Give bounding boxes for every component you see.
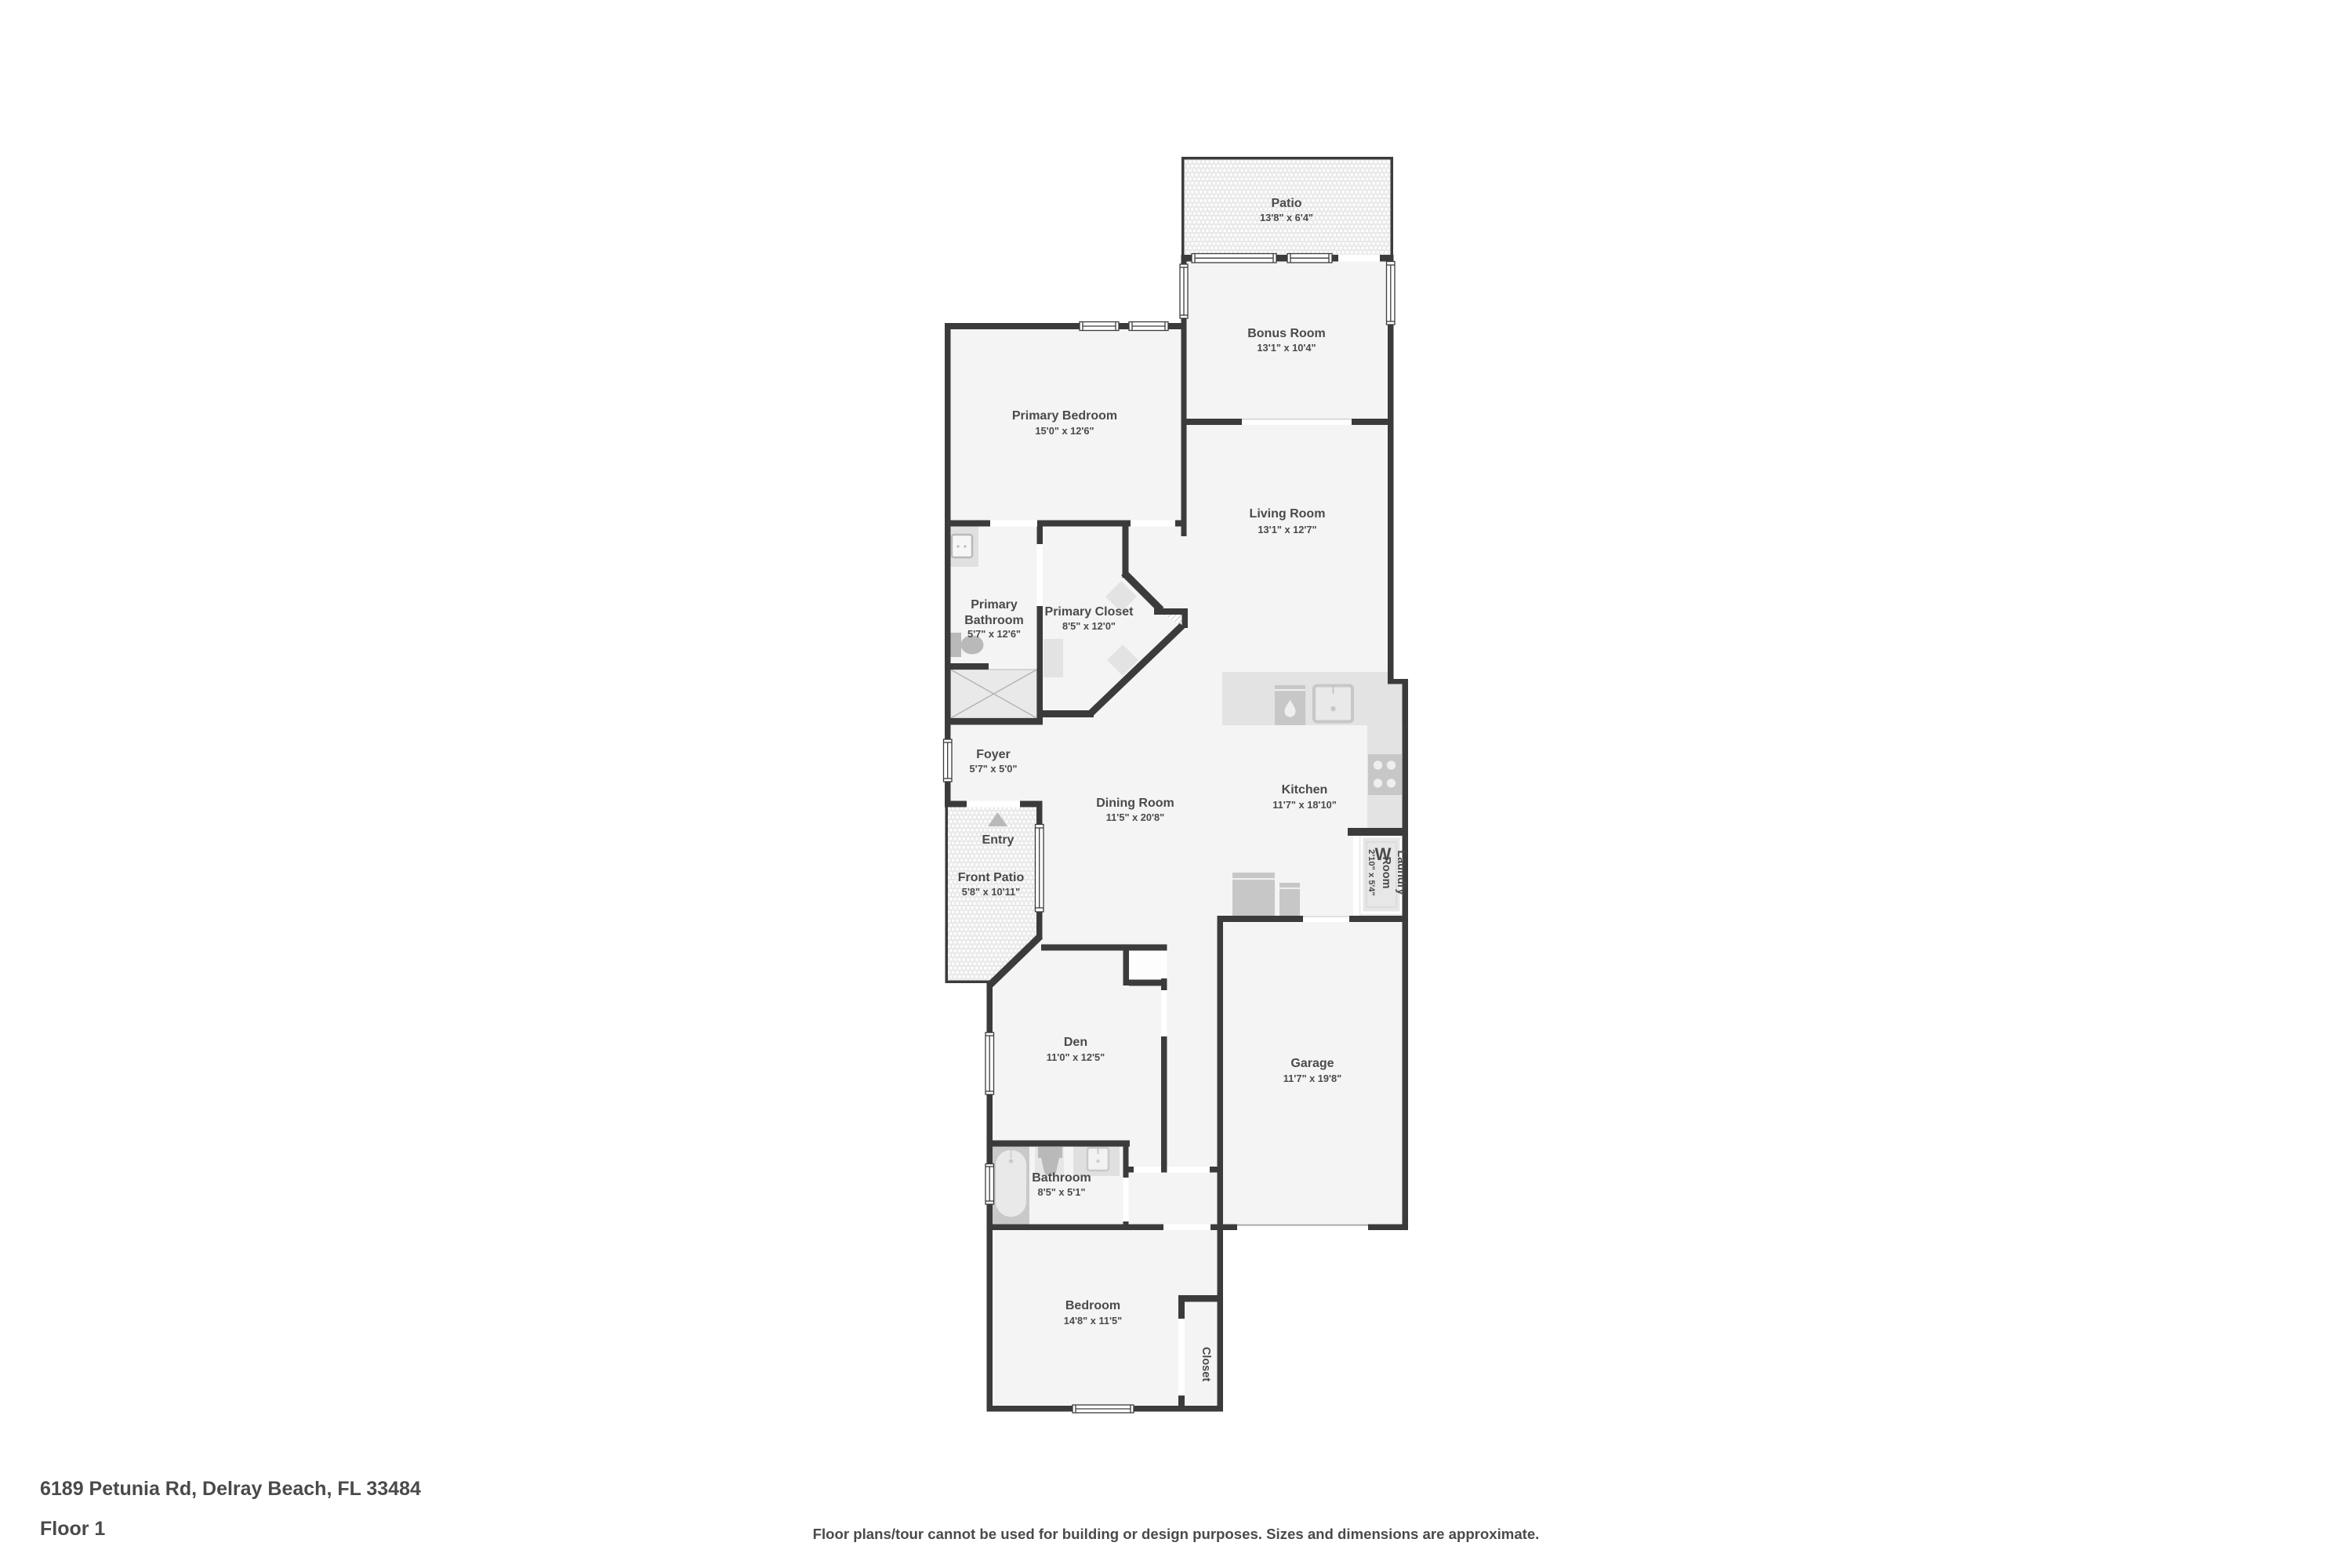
svg-text:11'7" x 18'10": 11'7" x 18'10" [1272,799,1337,811]
svg-text:13'1" x 10'4": 13'1" x 10'4" [1257,342,1316,354]
svg-text:Dining Room: Dining Room [1096,797,1174,810]
svg-text:Primary Bedroom: Primary Bedroom [1012,409,1117,423]
svg-text:Living Room: Living Room [1250,507,1326,521]
svg-text:Patio: Patio [1271,197,1301,210]
svg-text:Floor 1: Floor 1 [40,1518,105,1540]
svg-text:2'10" x 5'4": 2'10" x 5'4" [1367,849,1376,895]
svg-text:14'8" x 11'5": 14'8" x 11'5" [1064,1315,1122,1327]
svg-text:Room: Room [1380,856,1392,888]
svg-text:Bathroom: Bathroom [1032,1171,1091,1185]
svg-text:Primary Closet: Primary Closet [1045,605,1134,619]
svg-text:Bonus Room: Bonus Room [1247,327,1326,340]
svg-text:13'1" x 12'7": 13'1" x 12'7" [1258,524,1316,535]
svg-text:Bathroom: Bathroom [964,614,1024,627]
svg-text:Laundry: Laundry [1395,850,1407,895]
svg-text:Foyer: Foyer [976,748,1011,761]
svg-text:15'0" x 12'6": 15'0" x 12'6" [1035,425,1094,437]
svg-text:Primary: Primary [971,598,1018,612]
svg-text:11'5" x 20'8": 11'5" x 20'8" [1106,811,1164,823]
svg-text:Floor plans/tour cannot be use: Floor plans/tour cannot be used for buil… [813,1526,1540,1542]
svg-text:Den: Den [1064,1036,1087,1049]
svg-text:Closet: Closet [1200,1347,1212,1381]
svg-text:13'8" x 6'4": 13'8" x 6'4" [1260,212,1313,223]
svg-text:Kitchen: Kitchen [1282,783,1328,797]
svg-text:5'7" x 12'6": 5'7" x 12'6" [967,628,1021,640]
svg-text:11'0" x 12'5": 11'0" x 12'5" [1047,1051,1105,1063]
svg-text:5'7" x 5'0": 5'7" x 5'0" [970,763,1018,775]
svg-text:Bedroom: Bedroom [1065,1299,1120,1312]
svg-text:Entry: Entry [982,833,1014,847]
svg-text:5'8" x 10'11": 5'8" x 10'11" [962,886,1020,898]
svg-text:8'5" x 12'0": 8'5" x 12'0" [1062,620,1116,632]
svg-text:11'7" x 19'8": 11'7" x 19'8" [1283,1073,1341,1084]
svg-text:6189 Petunia Rd, Delray Beach,: 6189 Petunia Rd, Delray Beach, FL 33484 [40,1478,421,1500]
svg-text:Front Patio: Front Patio [958,871,1025,884]
svg-text:Garage: Garage [1290,1057,1334,1070]
svg-text:8'5" x 5'1": 8'5" x 5'1" [1038,1186,1086,1198]
